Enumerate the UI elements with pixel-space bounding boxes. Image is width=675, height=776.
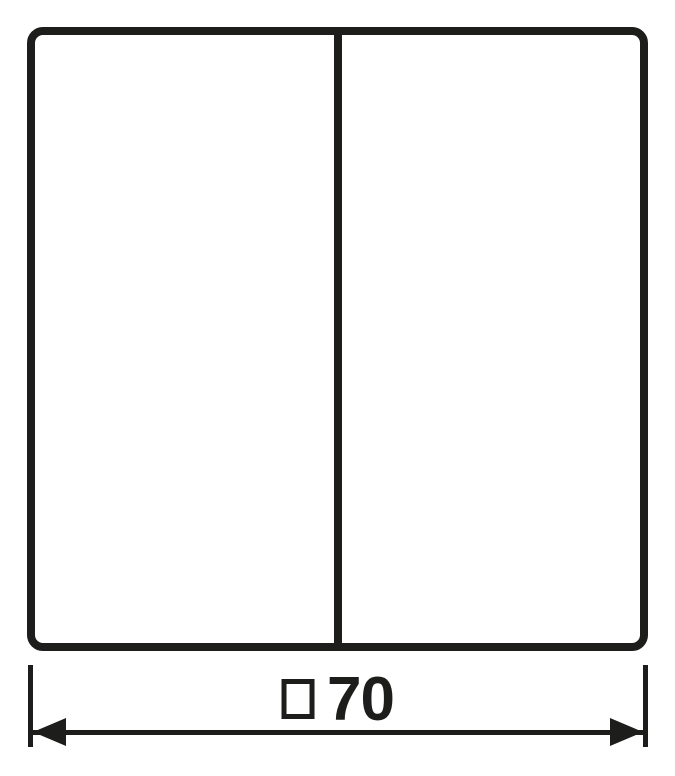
technical-drawing: 70: [0, 0, 675, 776]
dimension-label: 70: [281, 676, 394, 724]
square-symbol-icon: [281, 679, 314, 719]
dimension-value: 70: [327, 676, 394, 724]
arrowhead-right-icon: [610, 718, 643, 746]
extension-line-right: [643, 665, 648, 747]
arrowhead-left-icon: [33, 718, 66, 746]
dimension-annotation: 70: [0, 0, 675, 776]
